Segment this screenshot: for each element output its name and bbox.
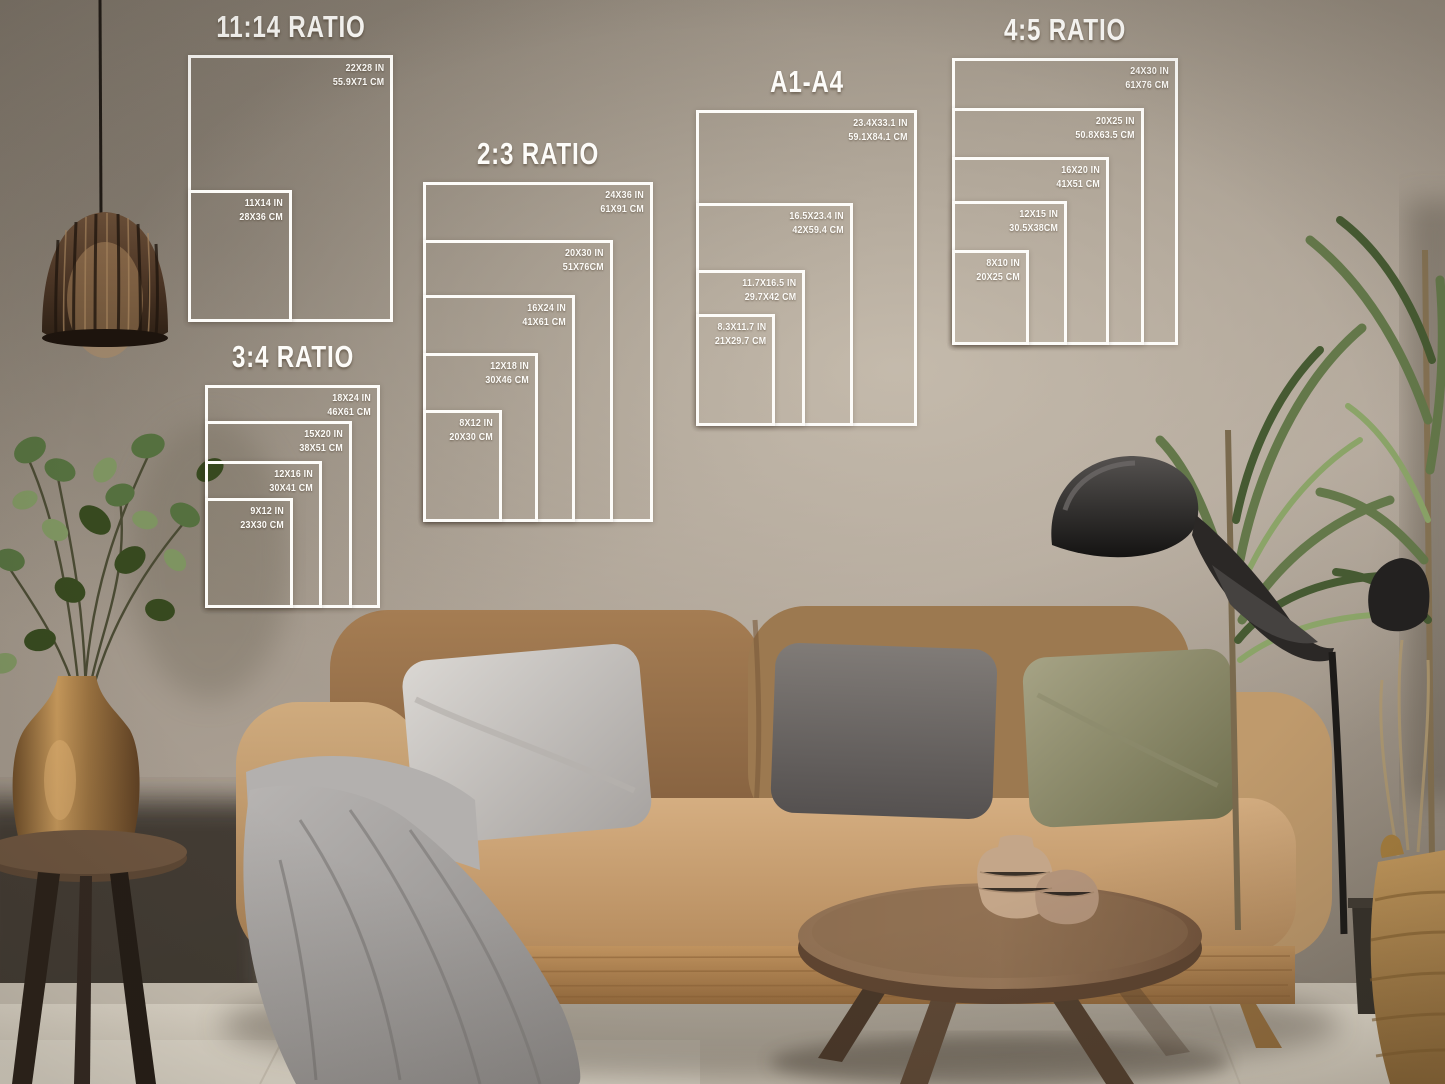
- size-label-cm: 23X30 CM: [240, 519, 284, 533]
- size-label: 16X20 IN41X51 CM: [1056, 164, 1100, 191]
- size-label-in: 8.3X11.7 IN: [714, 321, 766, 335]
- size-label-cm: 41X61 CM: [522, 316, 566, 330]
- size-label: 24X30 IN61X76 CM: [1125, 65, 1169, 92]
- size-label-cm: 55.9X71 CM: [332, 76, 384, 90]
- size-label-in: 24X30 IN: [1125, 65, 1169, 79]
- size-guide-ratio-3-4: 3:4 RATIO 18X24 IN46X61 CM15X20 IN38X51 …: [205, 385, 380, 608]
- size-label-in: 8X12 IN: [449, 417, 493, 431]
- size-label-cm: 42X59.4 CM: [789, 224, 844, 238]
- size-label-cm: 30.5X38CM: [1009, 222, 1058, 236]
- size-box: 8.3X11.7 IN21X29.7 CM: [696, 314, 775, 426]
- size-guide-boxes: 23.4X33.1 IN59.1X84.1 CM16.5X23.4 IN42X5…: [696, 110, 917, 426]
- size-label-in: 20X30 IN: [563, 247, 604, 261]
- size-guide-boxes: 24X36 IN61X91 CM20X30 IN51X76CM16X24 IN4…: [423, 182, 653, 522]
- size-label: 8X10 IN20X25 CM: [976, 257, 1020, 284]
- size-label-cm: 61X76 CM: [1125, 79, 1169, 93]
- size-box: 9X12 IN23X30 CM: [205, 498, 293, 608]
- size-label: 16.5X23.4 IN42X59.4 CM: [789, 210, 844, 237]
- size-guides-overlay: 11:14 RATIO 22X28 IN55.9X71 CM11X14 IN28…: [0, 0, 1445, 1084]
- size-label: 16X24 IN41X61 CM: [522, 302, 566, 329]
- size-label: 22X28 IN55.9X71 CM: [332, 62, 384, 89]
- size-guide-ratio-11-14: 11:14 RATIO 22X28 IN55.9X71 CM11X14 IN28…: [188, 55, 393, 322]
- size-label-in: 24X36 IN: [600, 189, 644, 203]
- size-label: 23.4X33.1 IN59.1X84.1 CM: [849, 117, 908, 144]
- size-guide-ratio-2-3: 2:3 RATIO 24X36 IN61X91 CM20X30 IN51X76C…: [423, 182, 653, 522]
- size-label: 15X20 IN38X51 CM: [299, 428, 343, 455]
- size-guide-title: A1-A4: [770, 64, 844, 100]
- size-label-cm: 41X51 CM: [1056, 178, 1100, 192]
- size-label: 8X12 IN20X30 CM: [449, 417, 493, 444]
- size-label: 11.7X16.5 IN29.7X42 CM: [742, 277, 796, 304]
- size-guide-ratio-4-5: 4:5 RATIO 24X30 IN61X76 CM20X25 IN50.8X6…: [952, 58, 1178, 345]
- size-label-cm: 29.7X42 CM: [742, 291, 796, 305]
- size-label: 8.3X11.7 IN21X29.7 CM: [714, 321, 766, 348]
- size-label-in: 15X20 IN: [299, 428, 343, 442]
- size-guide-boxes: 18X24 IN46X61 CM15X20 IN38X51 CM12X16 IN…: [205, 385, 380, 608]
- size-box: 11X14 IN28X36 CM: [188, 190, 292, 322]
- size-label-cm: 51X76CM: [563, 261, 604, 275]
- size-label-cm: 20X30 CM: [449, 431, 493, 445]
- size-label: 12X15 IN30.5X38CM: [1009, 208, 1058, 235]
- size-guide-title: 2:3 RATIO: [477, 136, 599, 172]
- size-box: 8X12 IN20X30 CM: [423, 410, 502, 522]
- size-label: 18X24 IN46X61 CM: [327, 392, 371, 419]
- size-label: 9X12 IN23X30 CM: [240, 505, 284, 532]
- size-label-in: 12X16 IN: [269, 468, 313, 482]
- size-label-in: 11X14 IN: [239, 197, 283, 211]
- size-label: 12X16 IN30X41 CM: [269, 468, 313, 495]
- size-label-in: 18X24 IN: [327, 392, 371, 406]
- size-guide-boxes: 24X30 IN61X76 CM20X25 IN50.8X63.5 CM16X2…: [952, 58, 1178, 345]
- size-label-cm: 20X25 CM: [976, 271, 1020, 285]
- size-label-in: 11.7X16.5 IN: [742, 277, 796, 291]
- size-label-in: 9X12 IN: [240, 505, 284, 519]
- size-guide-title: 11:14 RATIO: [216, 9, 365, 45]
- size-label: 24X36 IN61X91 CM: [600, 189, 644, 216]
- size-label: 20X25 IN50.8X63.5 CM: [1076, 115, 1135, 142]
- size-label: 12X18 IN30X46 CM: [485, 360, 529, 387]
- size-label-cm: 21X29.7 CM: [714, 335, 766, 349]
- size-label-in: 12X15 IN: [1009, 208, 1058, 222]
- size-label-cm: 46X61 CM: [327, 406, 371, 420]
- size-label-cm: 28X36 CM: [239, 211, 283, 225]
- size-label-in: 23.4X33.1 IN: [849, 117, 908, 131]
- size-label: 20X30 IN51X76CM: [563, 247, 604, 274]
- size-guide-title: 3:4 RATIO: [231, 339, 353, 375]
- size-guide-title: 4:5 RATIO: [1004, 12, 1126, 48]
- size-guide-boxes: 22X28 IN55.9X71 CM11X14 IN28X36 CM: [188, 55, 393, 322]
- size-label-in: 16X24 IN: [522, 302, 566, 316]
- size-label-in: 12X18 IN: [485, 360, 529, 374]
- size-label-cm: 30X46 CM: [485, 374, 529, 388]
- size-label-cm: 59.1X84.1 CM: [849, 131, 908, 145]
- size-guide-mockup: 11:14 RATIO 22X28 IN55.9X71 CM11X14 IN28…: [0, 0, 1445, 1084]
- size-label-in: 16X20 IN: [1056, 164, 1100, 178]
- size-label-cm: 61X91 CM: [600, 203, 644, 217]
- size-label-in: 20X25 IN: [1076, 115, 1135, 129]
- size-box: 8X10 IN20X25 CM: [952, 250, 1029, 345]
- size-guide-a1-a4: A1-A4 23.4X33.1 IN59.1X84.1 CM16.5X23.4 …: [696, 110, 917, 426]
- size-label-cm: 30X41 CM: [269, 482, 313, 496]
- size-label-in: 8X10 IN: [976, 257, 1020, 271]
- size-label: 11X14 IN28X36 CM: [239, 197, 283, 224]
- size-label-cm: 50.8X63.5 CM: [1076, 129, 1135, 143]
- size-label-in: 16.5X23.4 IN: [789, 210, 844, 224]
- size-label-in: 22X28 IN: [332, 62, 384, 76]
- size-label-cm: 38X51 CM: [299, 442, 343, 456]
